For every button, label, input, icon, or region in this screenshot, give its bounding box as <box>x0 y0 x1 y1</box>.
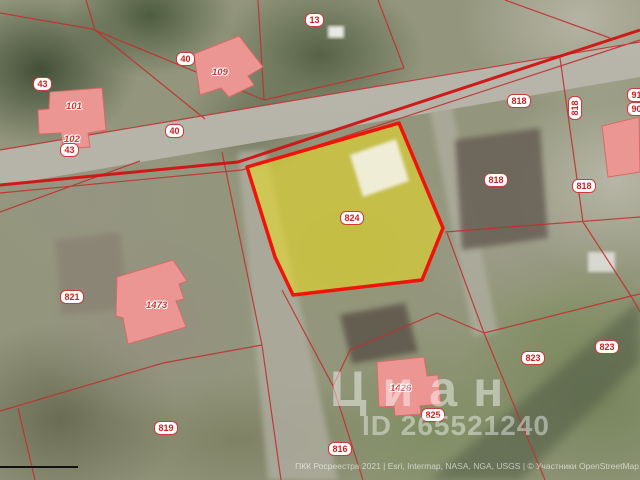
parcel-label-818[interactable]: 818 <box>572 179 596 193</box>
white-object-photo <box>588 252 615 272</box>
building-label-102: 102 <box>64 135 80 145</box>
building-label-1473: 1473 <box>146 301 167 311</box>
parcel-label-91[interactable]: 91 <box>627 88 640 102</box>
parcel-label-43[interactable]: 43 <box>60 143 79 157</box>
dark-roof-house-photo <box>340 303 418 364</box>
parcel-label-824-selected[interactable]: 824 <box>340 211 364 225</box>
map-canvas[interactable]: 43 40 13 40 43 818 818 818 818 91 90 821… <box>0 0 640 480</box>
parcel-label-40[interactable]: 40 <box>165 124 184 138</box>
map-vector-layer <box>0 0 640 480</box>
building-right-edge <box>602 117 640 177</box>
parcel-label-818-rotated[interactable]: 818 <box>568 96 582 120</box>
parcel-label-818[interactable]: 818 <box>484 173 508 187</box>
parcel-label-818[interactable]: 818 <box>507 94 531 108</box>
parcel-label-13[interactable]: 13 <box>305 13 324 27</box>
parcel-label-90[interactable]: 90 <box>627 102 640 116</box>
parcel-label-816[interactable]: 816 <box>328 442 352 456</box>
watermark-id: ID 265521240 <box>362 410 550 442</box>
building-label-109: 109 <box>212 68 228 78</box>
parcel-label-821[interactable]: 821 <box>60 290 84 304</box>
white-car-photo <box>328 26 344 38</box>
parcel-label-819[interactable]: 819 <box>154 421 178 435</box>
dark-roof-house-photo <box>455 128 548 250</box>
parcel-label-40[interactable]: 40 <box>176 52 195 66</box>
map-attribution: ПКК Росреестра 2021 | Esri, Intermap, NA… <box>295 461 639 471</box>
parcel-label-43[interactable]: 43 <box>33 77 52 91</box>
building-label-101: 101 <box>66 102 82 112</box>
building-109 <box>194 36 263 97</box>
scale-bar <box>0 466 78 468</box>
parcel-label-823[interactable]: 823 <box>521 351 545 365</box>
parcel-label-823[interactable]: 823 <box>595 340 619 354</box>
